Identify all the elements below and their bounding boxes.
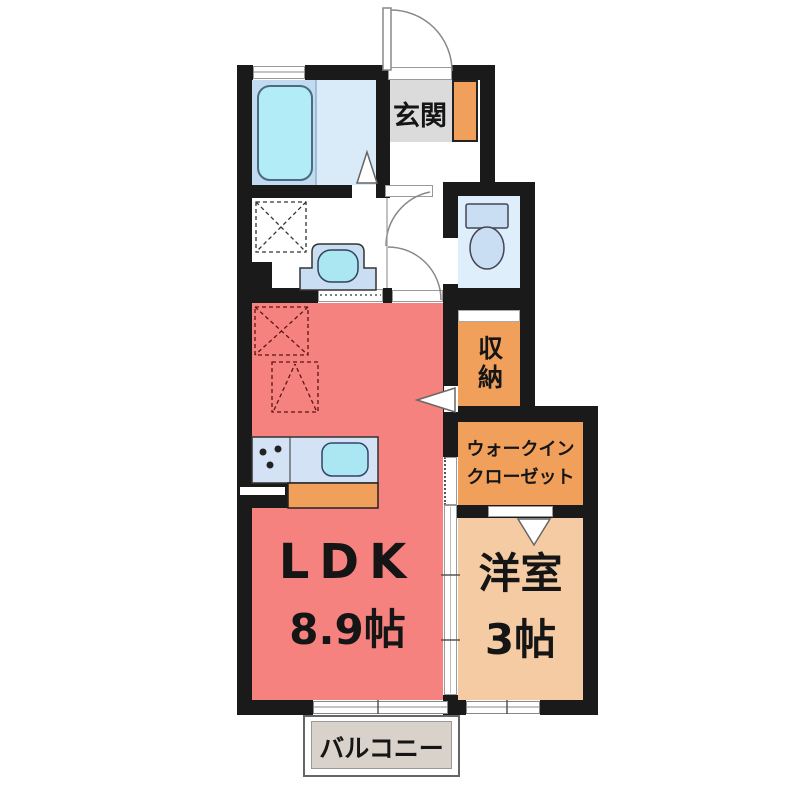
entrance-door [383,8,452,71]
western-room-label: 洋室 [458,540,583,600]
ldk-door-arc [388,247,441,300]
ldk-size-label: 8.9帖 [252,596,443,656]
floor-plan: 玄関 収納 ウォークイン クローゼット LDK 8.9帖 洋室 3帖 バルコニー [0,0,800,800]
walk-in-closet-label-line2: クローゼット [467,464,575,492]
balcony-label: バルコニー [311,727,452,767]
appliance-space [272,362,318,412]
refrigerator-space [255,307,308,355]
bathtub [258,86,312,180]
walk-in-closet-label-line1: ウォークイン [467,436,575,464]
kitchen-cabinet [288,483,378,508]
kitchen-sink [322,443,368,476]
washing-machine-space [256,202,306,252]
bathroom-folding-door [357,152,377,183]
storage-label: 収納 [458,322,520,406]
ldk-label: LDK [252,530,443,594]
storage-door-triangle [417,388,455,412]
western-room-size-label: 3帖 [458,606,583,666]
toilet-bowl [470,227,504,269]
washbasin-bowl [318,250,358,282]
toilet-tank [466,204,508,228]
walk-in-closet-label: ウォークイン クローゼット [458,425,583,503]
entrance-label: 玄関 [388,90,452,136]
toilet-door-arc [386,192,430,246]
storage-label-text: 収納 [477,335,502,393]
